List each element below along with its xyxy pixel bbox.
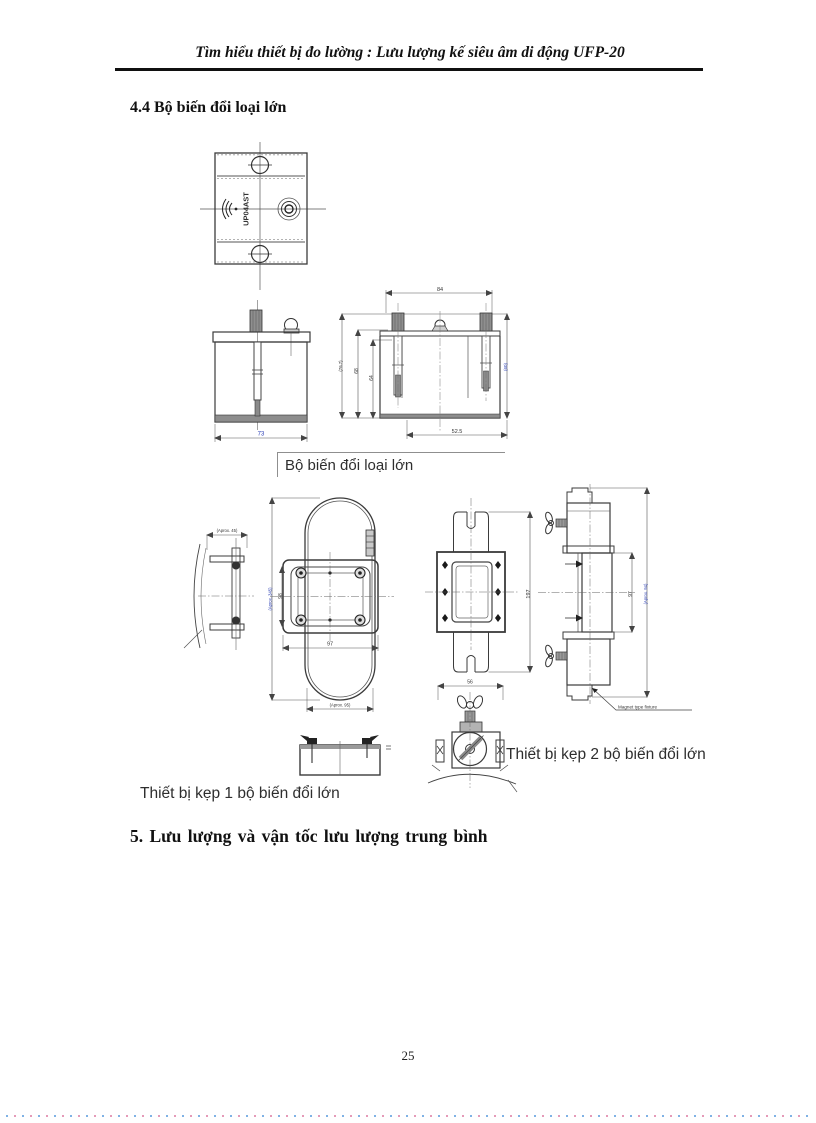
- page-number: 25: [0, 1048, 816, 1064]
- dim-assembly-height: (Aprox. 94): [643, 583, 648, 604]
- dim-bracket-width: 97: [327, 642, 333, 648]
- bottom-dotted-rule: [6, 1115, 810, 1117]
- wing-screw-icon: [544, 644, 567, 667]
- chain-clamp-drawing: (Aprox. 45) (: [170, 478, 425, 733]
- transducer-section-view-drawing: 84 (76.7) 68 64 (60): [330, 283, 525, 461]
- dim-flange-height: 197: [526, 589, 532, 598]
- transducer-side-view-drawing: 73: [203, 296, 328, 454]
- header-rule: [115, 68, 703, 71]
- section-5-heading: 5. Lưu lượng và vận tốc lưu lượng trung …: [130, 826, 488, 847]
- probe-rod-icon: [254, 342, 261, 400]
- page-header-title: Tìm hiểu thiết bị đo lường : Lưu lượng k…: [110, 44, 710, 62]
- dim-block-height: 97: [628, 591, 634, 597]
- dim-top-width: 84: [437, 287, 443, 293]
- dim-loop-width: (Aprox. 95): [330, 703, 351, 708]
- clamp1-caption: Thiết bị kẹp 1 bộ biến đổi lớn: [140, 785, 340, 803]
- pipe-arc: [428, 774, 516, 784]
- dim-height-inner: 64: [369, 375, 375, 381]
- clamp-block-drawing: [293, 733, 393, 783]
- section-4-4-heading: 4.4 Bộ biến đổi loại lớn: [130, 99, 286, 117]
- bolt-icon: [232, 562, 240, 570]
- dim-bracket-height: 98: [278, 593, 284, 599]
- dim-overall-height: (Aprox. 345): [268, 587, 273, 611]
- dim-bottom-width: 52.5: [452, 429, 463, 435]
- dim-height-right: (60): [503, 363, 508, 372]
- chain-buckle-icon: [366, 530, 374, 556]
- transducer-caption: Bộ biến đổi loại lớn: [277, 452, 505, 477]
- document-page: Tìm hiểu thiết bị đo lường : Lưu lượng k…: [0, 0, 816, 1123]
- dim-height-mid: 68: [354, 368, 360, 374]
- dim-width-73: 73: [258, 432, 265, 438]
- dim-side-width: (Aprox. 45): [217, 528, 238, 533]
- dim-height-outer: (76.7): [338, 360, 343, 372]
- bolt-icon: [232, 617, 240, 625]
- pin-head-icon: [362, 738, 372, 744]
- transducer-top-view-drawing: UP04AST: [198, 140, 328, 292]
- pin-head-icon: [307, 738, 317, 744]
- dim-clamp-width: 56: [467, 680, 473, 686]
- clamp2-caption: Thiết bị kẹp 2 bộ biến đổi lớn: [506, 746, 706, 764]
- wing-screw-icon: [544, 511, 567, 534]
- transducer-marking: UP04AST: [242, 192, 251, 226]
- magnet-fixture-note: Magnet type fixture: [618, 705, 658, 710]
